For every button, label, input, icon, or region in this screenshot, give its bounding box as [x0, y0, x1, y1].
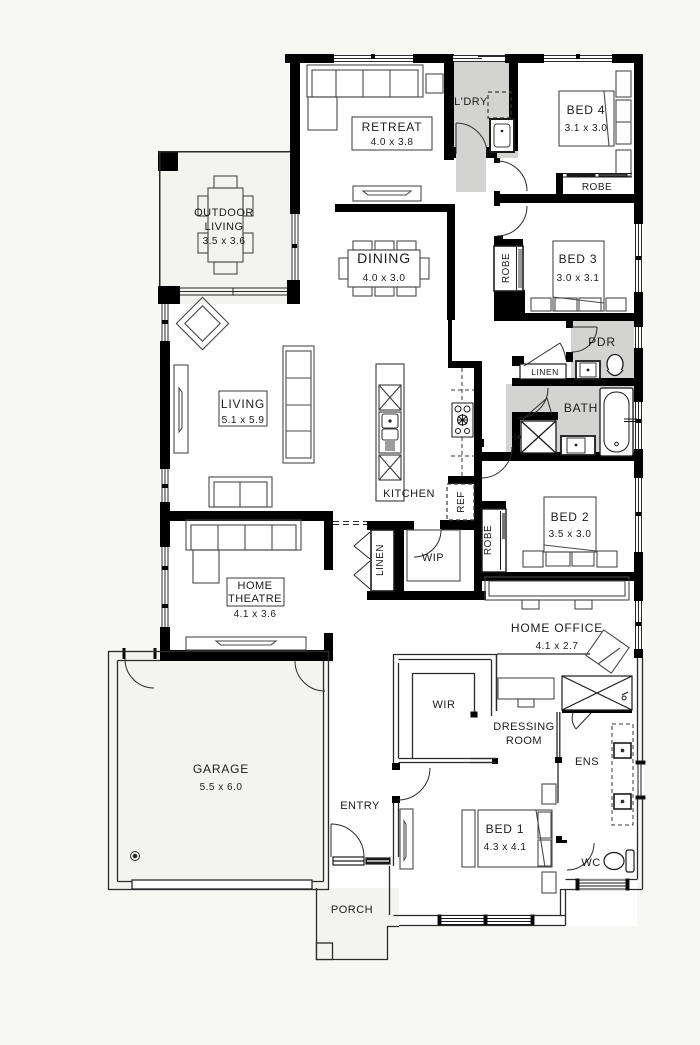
svg-text:LIVING: LIVING	[204, 221, 243, 233]
svg-text:ENTRY: ENTRY	[340, 800, 380, 812]
svg-text:L'DRY: L'DRY	[454, 96, 488, 108]
svg-text:ROBE: ROBE	[483, 525, 494, 555]
svg-text:ROOM: ROOM	[506, 735, 542, 747]
svg-text:WIP: WIP	[422, 552, 444, 564]
svg-text:DINING: DINING	[357, 250, 411, 266]
svg-text:4.1 x 2.7: 4.1 x 2.7	[536, 641, 579, 652]
svg-text:KITCHEN: KITCHEN	[383, 488, 435, 500]
svg-text:LINEN: LINEN	[531, 367, 559, 377]
svg-text:3.5 x 3.0: 3.5 x 3.0	[549, 529, 592, 540]
svg-text:5.5 x 6.0: 5.5 x 6.0	[200, 782, 243, 793]
svg-text:ENS: ENS	[575, 756, 599, 768]
svg-text:BATH: BATH	[564, 401, 598, 415]
svg-text:BED 2: BED 2	[551, 510, 590, 524]
svg-text:PDR: PDR	[588, 335, 616, 349]
svg-text:ROBE: ROBE	[582, 182, 612, 193]
svg-text:OUTDOOR: OUTDOOR	[194, 207, 254, 219]
svg-text:HOME: HOME	[238, 580, 273, 592]
svg-text:THEATRE: THEATRE	[228, 593, 282, 605]
svg-text:REF: REF	[456, 491, 467, 513]
svg-text:4.3 x 4.1: 4.3 x 4.1	[484, 842, 527, 853]
svg-text:HOME OFFICE: HOME OFFICE	[511, 621, 603, 635]
svg-text:4.0 x 3.8: 4.0 x 3.8	[371, 137, 414, 148]
svg-text:BED 3: BED 3	[559, 252, 598, 266]
svg-text:5.1 x 5.9: 5.1 x 5.9	[222, 415, 265, 426]
svg-text:3.0 x 3.1: 3.0 x 3.1	[557, 273, 600, 284]
svg-text:4.1 x 3.6: 4.1 x 3.6	[234, 609, 277, 620]
svg-text:PORCH: PORCH	[331, 904, 373, 916]
svg-text:4.0 x 3.0: 4.0 x 3.0	[363, 273, 406, 284]
svg-text:ROBE: ROBE	[501, 253, 512, 283]
svg-text:WIR: WIR	[433, 699, 456, 711]
svg-text:RETREAT: RETREAT	[362, 120, 423, 134]
svg-text:BED 4: BED 4	[567, 103, 606, 117]
svg-text:GARAGE: GARAGE	[193, 762, 249, 776]
svg-text:3.5 x 3.6: 3.5 x 3.6	[203, 236, 246, 247]
svg-text:DRESSING: DRESSING	[493, 721, 554, 733]
svg-text:WC: WC	[581, 857, 600, 869]
svg-text:LIVING: LIVING	[221, 397, 265, 411]
svg-text:BED 1: BED 1	[486, 822, 525, 836]
svg-text:3.1 x 3.0: 3.1 x 3.0	[565, 123, 608, 134]
svg-text:LINEN: LINEN	[375, 544, 386, 576]
